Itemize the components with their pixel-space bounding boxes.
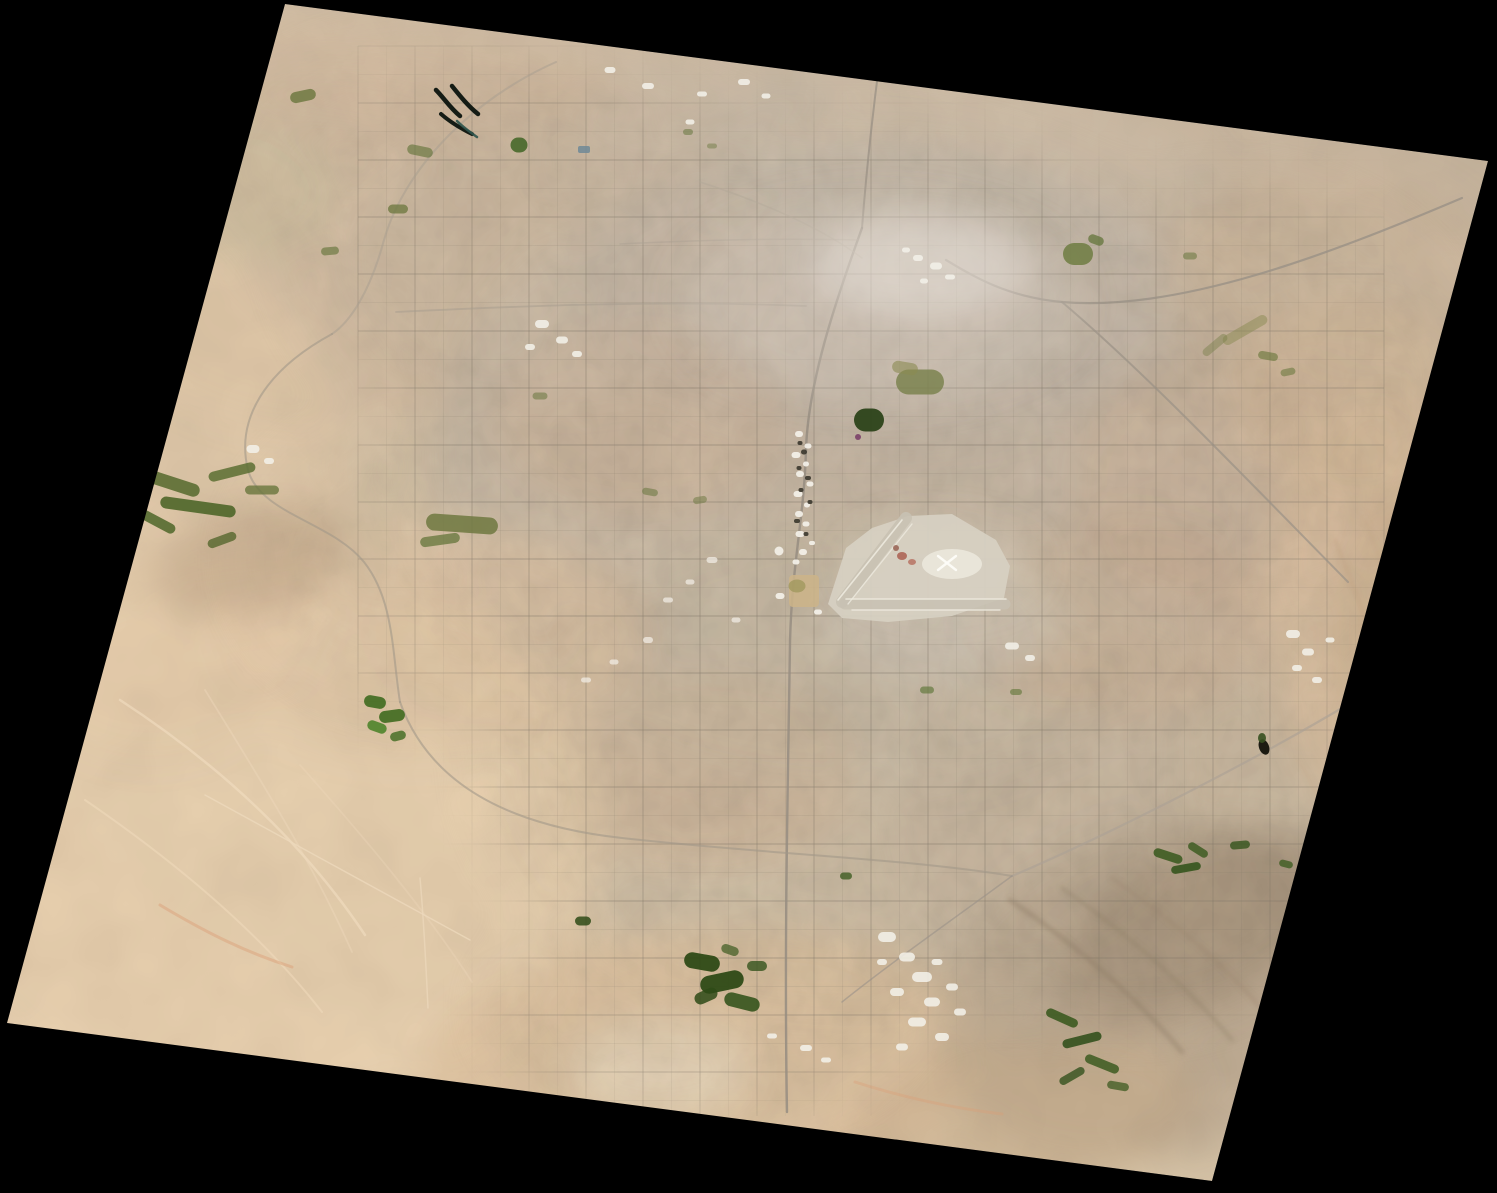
satellite-scene (0, 0, 1497, 1193)
viewer-canvas (0, 0, 1497, 1193)
